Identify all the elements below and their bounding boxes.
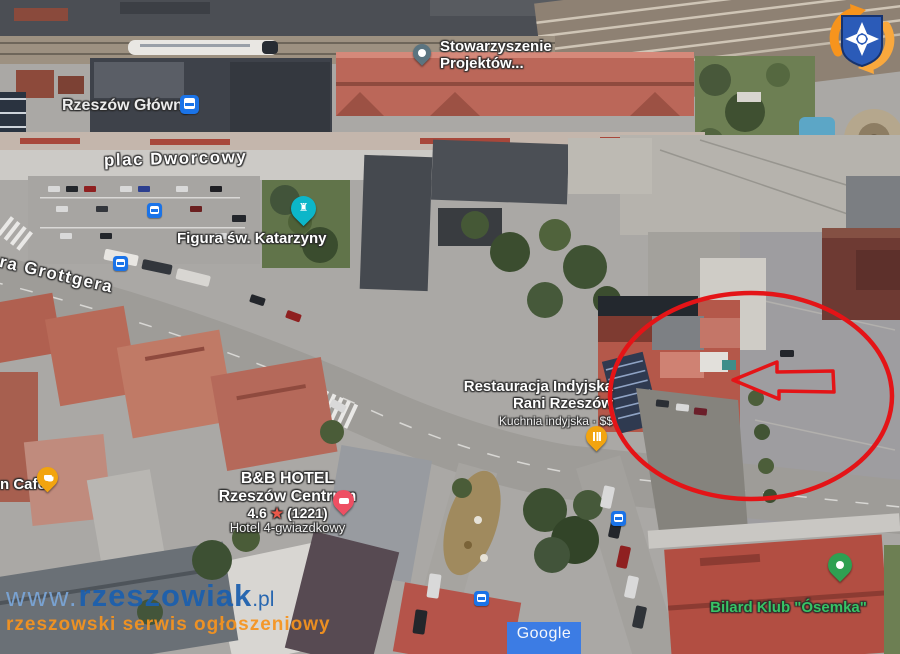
watermark-tld: .pl	[252, 588, 274, 611]
rzeszow-crest-icon	[842, 16, 882, 66]
monument-icon: ♜	[291, 196, 316, 221]
google-logo[interactable]: Google	[507, 622, 581, 654]
label-restaurant-line2: Rani Rzeszów	[450, 396, 613, 413]
fork-knife-icon	[586, 426, 607, 447]
bus-stop-icon-2[interactable]	[113, 256, 128, 271]
label-figura[interactable]: Figura św. Katarzyny	[177, 231, 327, 248]
cafe-pin[interactable]	[33, 463, 63, 493]
label-bilard-klub[interactable]: Bilard Klub "Ósemka"	[696, 600, 881, 617]
green-square	[262, 180, 350, 268]
map-screenshot: Rzeszów Główny plac Dworcowy ra Grottger…	[0, 0, 900, 654]
pin-dot-icon	[413, 44, 431, 62]
label-stowarzyszenie[interactable]: Stowarzyszenie Projektów...	[440, 39, 552, 73]
watermark-name: rzeszowiak	[79, 578, 253, 613]
bus-stop-icon-3[interactable]	[611, 511, 626, 526]
site-watermark: www.rzeszowiak.pl rzeszowski serwis ogło…	[6, 580, 331, 634]
figura-pin[interactable]: ♜	[286, 191, 321, 226]
pin-dot-icon	[828, 553, 852, 577]
bus-stop-icon-4[interactable]	[474, 591, 489, 606]
restaurant-pin[interactable]	[582, 422, 612, 452]
watermark-prefix: www.	[6, 582, 79, 612]
label-hotel-line1: B&B HOTEL	[195, 470, 380, 488]
billiard-pin[interactable]	[823, 548, 857, 582]
hotel-rating-value: 4.6	[247, 505, 266, 521]
label-restaurant[interactable]: Restauracja Indyjska Rani Rzeszów Kuchni…	[450, 379, 613, 428]
bus-stop-icon-1[interactable]	[147, 203, 162, 218]
hotel-category: Hotel 4-gwiazdkowy	[195, 521, 380, 536]
bed-icon	[333, 490, 354, 511]
rzeszowiak-logo	[824, 0, 900, 78]
watermark-tagline: rzeszowski serwis ogłoszeniowy	[6, 615, 331, 635]
association-pin[interactable]	[409, 40, 434, 65]
label-rzeszow-glowny[interactable]: Rzeszów Główny	[62, 97, 192, 115]
label-stowarzyszenie-line2: Projektów...	[440, 56, 552, 73]
rating-star-icon: ★	[271, 505, 284, 521]
train-station-icon[interactable]	[180, 95, 199, 114]
hotel-review-count: (1221)	[287, 505, 327, 521]
label-restaurant-line1: Restauracja Indyjska	[450, 379, 613, 396]
label-stowarzyszenie-line1: Stowarzyszenie	[440, 39, 552, 56]
google-logo-text: Google	[517, 625, 572, 643]
watermark-url: www.rzeszowiak.pl	[6, 580, 331, 613]
coffee-cup-icon	[37, 467, 58, 488]
hotel-pin[interactable]	[329, 486, 359, 516]
street-label-plac-dworcowy: plac Dworcowy	[104, 147, 248, 170]
parking-lot-west	[0, 176, 260, 264]
